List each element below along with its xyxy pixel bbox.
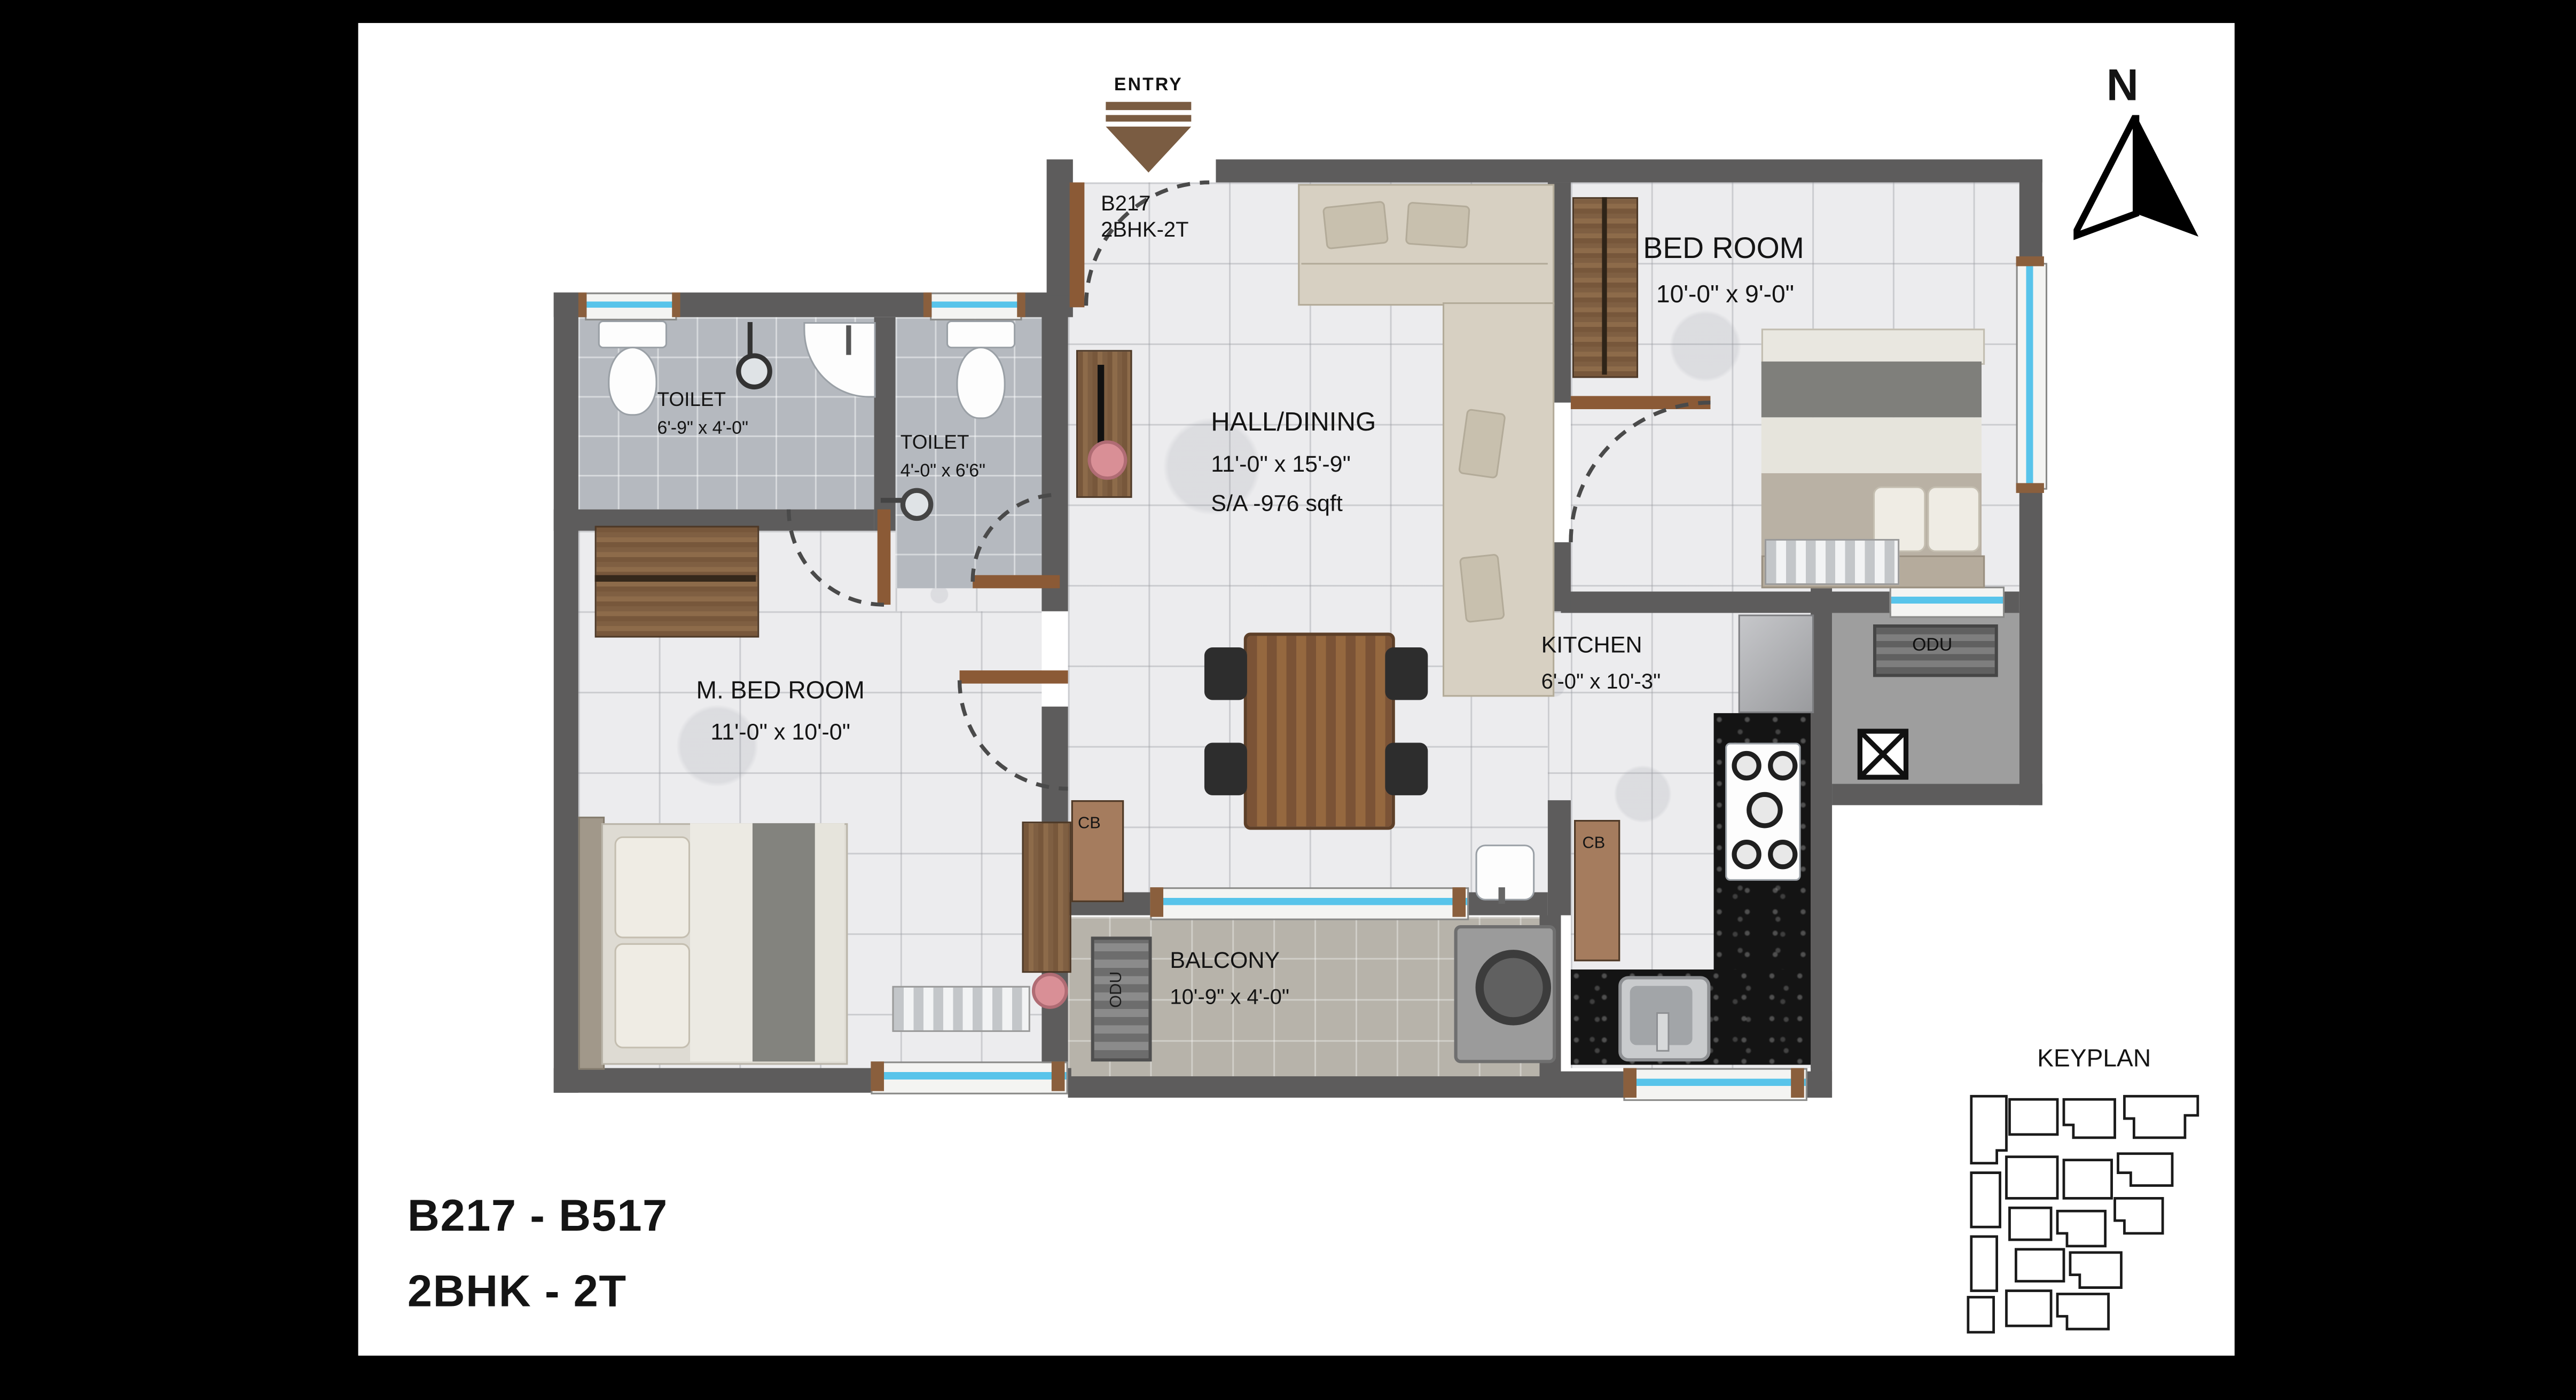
unit-tag: B217 2BHK-2T: [1101, 191, 1188, 244]
toilet1-dims: 6'-9" x 4'-0": [657, 419, 838, 441]
north-label: N: [2107, 59, 2139, 115]
north-arrow-icon: [2073, 115, 2198, 243]
bedroom-dims: 10'-0" x 9'-0": [1656, 280, 1922, 311]
entry-arrow-icon: [1106, 127, 1191, 173]
accent-stool-icon: [1088, 440, 1128, 480]
dresser-unit: [1022, 822, 1071, 973]
dining-chair: [1385, 742, 1428, 795]
title-line2: 2BHK - 2T: [408, 1265, 668, 1320]
hall-washbasin-tap-icon: [1499, 887, 1505, 904]
shower-icon: [748, 322, 753, 358]
balcony-name: BALCONY: [1170, 947, 1289, 975]
toilet2-label: TOILET 4'-0" x 6'6": [901, 431, 1048, 484]
shower-head-icon: [736, 353, 772, 389]
bed-headboard: [578, 817, 605, 1070]
balcony-dims: 10'-9" x 4'-0": [1170, 983, 1289, 1010]
refrigerator: [1739, 615, 1814, 714]
wardrobe-divider: [595, 575, 756, 582]
keyplan-map: [1959, 1081, 2230, 1341]
kitchen-sink-tap-icon: [1656, 1012, 1670, 1052]
entry-label: ENTRY: [1091, 76, 1206, 98]
hall-name: HALL/DINING: [1211, 408, 1376, 441]
sofa-cushion: [1459, 553, 1505, 623]
bed-sheet: [690, 823, 753, 1061]
entry-arrow-stripe: [1106, 102, 1191, 110]
entry-arrow-stripe: [1106, 115, 1191, 121]
odu-yard-label: ODU: [1873, 636, 1991, 659]
hall-dims: 11'-0" x 15'-9": [1211, 450, 1376, 479]
kitchen-cupboard-label: CB: [1582, 835, 1605, 855]
shower-head-icon: [901, 488, 934, 521]
master-bedroom-name: M. BED ROOM: [632, 677, 928, 708]
bedroom-label: BED ROOM 10'-0" x 9'-0": [1643, 230, 1922, 311]
title-block: B217 - B517 2BHK - 2T: [408, 1190, 668, 1320]
washing-machine-door-icon: [1476, 950, 1552, 1026]
toilet-wc-bowl-icon: [608, 347, 657, 416]
toilet1-label: TOILET 6'-9" x 4'-0": [657, 388, 838, 442]
basin-tap-icon: [846, 325, 851, 355]
bedroom-wardrobe-divider: [1602, 197, 1607, 374]
sofa-cushion: [1405, 201, 1470, 248]
hob-burner-icon: [1747, 792, 1783, 828]
dining-chair: [1385, 647, 1428, 700]
kitchen-label: KITCHEN 6'-0" x 10'-3": [1541, 631, 1661, 694]
dining-table: [1244, 632, 1395, 830]
ac-indoor-unit: [892, 986, 1030, 1032]
bed2-blanket: [1761, 362, 1982, 418]
hall-area: S/A -976 sqft: [1211, 489, 1376, 518]
sofa-cushion: [1322, 201, 1389, 250]
dresser-stool-icon: [1032, 973, 1068, 1009]
toilet1-name: TOILET: [657, 388, 838, 412]
bed-pillow: [615, 943, 691, 1049]
toilet-wc-icon: [598, 320, 667, 348]
duct-shaft-icon: [1857, 728, 1909, 780]
kitchen-name: KITCHEN: [1541, 631, 1661, 660]
bed-pillow: [615, 836, 691, 938]
dining-chair: [1204, 742, 1247, 795]
keyplan-title: KEYPLAN: [1959, 1045, 2230, 1076]
dining-chair: [1204, 647, 1247, 700]
master-bedroom-label: M. BED ROOM 11'-0" x 10'-0": [632, 677, 928, 746]
hob-burner-icon: [1732, 840, 1761, 869]
kitchen-dims: 6'-0" x 10'-3": [1541, 668, 1661, 695]
unit-tag-line1: B217: [1101, 191, 1188, 217]
bed-blanket: [753, 823, 815, 1061]
sofa-l-vertical: [1443, 302, 1554, 697]
bed-duvet-fold: [815, 823, 844, 1061]
sofa-seatline: [1301, 263, 1547, 264]
toilet-wc-icon: [946, 320, 1015, 348]
floorplan-page: ENTRY B217 2BHK-2T HALL/DINING 11'-0" x …: [0, 0, 2576, 1400]
hob-burner-icon: [1768, 751, 1797, 780]
toilet2-name: TOILET: [901, 431, 1048, 455]
hob-burner-icon: [1732, 751, 1761, 780]
unit-tag-line2: 2BHK-2T: [1101, 217, 1188, 244]
bed-pillow: [1927, 487, 1979, 552]
ac-indoor-unit: [1765, 539, 1899, 585]
bed2-sheet: [1761, 329, 1985, 365]
hob-burner-icon: [1768, 840, 1797, 869]
toilet2-dims: 4'-0" x 6'6": [901, 462, 1048, 484]
hall-cupboard-label: CB: [1078, 815, 1101, 835]
balcony-odu-label: ODU: [1108, 963, 1128, 1017]
shower-arm-icon: [881, 498, 904, 503]
bed2-duvet: [1761, 417, 1982, 473]
balcony-label: BALCONY 10'-9" x 4'-0": [1170, 947, 1289, 1010]
bedroom-name: BED ROOM: [1643, 230, 1922, 267]
title-line1: B217 - B517: [408, 1190, 668, 1245]
master-bedroom-dims: 11'-0" x 10'-0": [632, 718, 928, 747]
hall-label: HALL/DINING 11'-0" x 15'-9" S/A -976 sqf…: [1211, 408, 1376, 518]
toilet-wc-bowl-icon: [956, 347, 1005, 419]
